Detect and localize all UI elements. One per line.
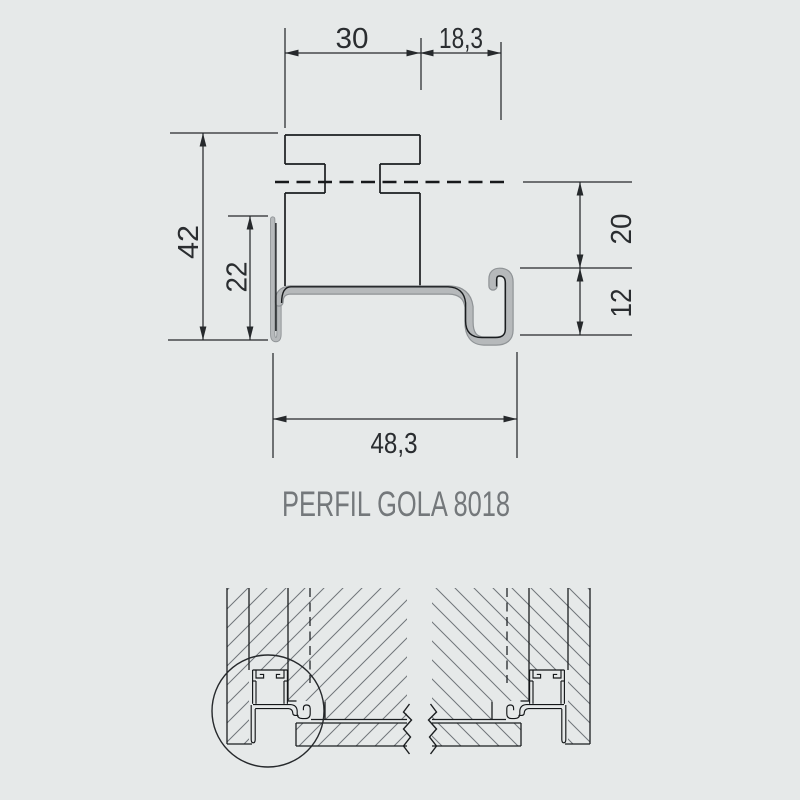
dim-right-upper: 20: [606, 214, 638, 245]
main-cross-section: 30 18,3 42 22 20 12 48,3: [168, 23, 638, 460]
gola-profile-extrusion: [273, 219, 509, 341]
extension-lines: [168, 28, 632, 458]
dim-bottom-width: 48,3: [371, 428, 418, 460]
dim-overall-height: 42: [173, 225, 205, 259]
dimension-arrowheads: [200, 50, 584, 423]
drawing-canvas: 30 18,3 42 22 20 12 48,3 PERFIL GOLA 801…: [0, 0, 800, 800]
installation-detail-right: [410, 588, 590, 746]
technical-drawing-page: 30 18,3 42 22 20 12 48,3 PERFIL GOLA 801…: [0, 0, 800, 800]
door-panel-outline: [285, 135, 420, 286]
dim-top-right: 18,3: [439, 23, 483, 55]
dimension-lines: [203, 53, 580, 419]
dim-flange-height: 22: [222, 262, 254, 293]
dim-top-left: 30: [336, 23, 369, 55]
drawing-title: PERFIL GOLA 8018: [282, 485, 510, 524]
installation-detail-left: [212, 588, 412, 767]
dim-right-lower: 12: [606, 289, 638, 318]
